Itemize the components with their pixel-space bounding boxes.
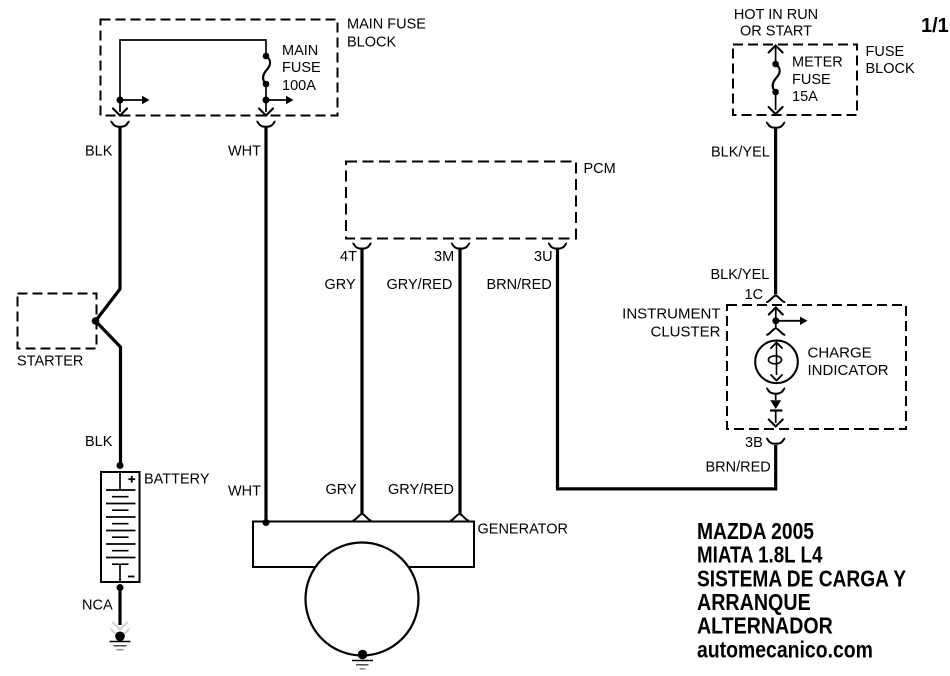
svg-text:INSTRUMENT: INSTRUMENT: [622, 306, 720, 323]
svg-text:3M: 3M: [434, 249, 454, 265]
svg-text:BLK: BLK: [85, 434, 113, 450]
svg-text:STARTER: STARTER: [17, 354, 83, 370]
svg-text:BLK: BLK: [85, 144, 113, 160]
svg-text:CHARGE: CHARGE: [808, 345, 872, 362]
svg-text:NCA: NCA: [82, 598, 113, 614]
svg-text:3B: 3B: [745, 435, 763, 451]
svg-text:GRY/RED: GRY/RED: [387, 277, 453, 293]
svg-text:WHT: WHT: [228, 484, 261, 500]
svg-text:HOT IN RUN: HOT IN RUN: [734, 7, 818, 23]
svg-text:GENERATOR: GENERATOR: [478, 522, 569, 538]
svg-text:PCM: PCM: [584, 161, 616, 177]
svg-text:MIATA 1.8L L4: MIATA 1.8L L4: [697, 542, 823, 568]
svg-text:GRY: GRY: [326, 482, 357, 498]
svg-text:GRY/RED: GRY/RED: [388, 482, 454, 498]
svg-text:MAIN FUSE: MAIN FUSE: [347, 17, 426, 33]
svg-text:FUSE: FUSE: [866, 44, 905, 60]
svg-text:1C: 1C: [745, 287, 764, 303]
svg-text:OR START: OR START: [740, 24, 812, 40]
svg-text:BLOCK: BLOCK: [866, 61, 915, 77]
svg-text:1/1: 1/1: [921, 15, 949, 37]
svg-text:BRN/RED: BRN/RED: [487, 277, 552, 293]
svg-text:METER: METER: [792, 55, 843, 71]
svg-text:WHT: WHT: [228, 144, 261, 160]
svg-text:100A: 100A: [282, 78, 316, 94]
svg-text:FUSE: FUSE: [792, 72, 831, 88]
svg-text:SISTEMA DE CARGA Y: SISTEMA DE CARGA Y: [697, 565, 906, 591]
svg-text:BLK/YEL: BLK/YEL: [711, 145, 770, 161]
svg-text:ARRANQUE: ARRANQUE: [697, 589, 811, 615]
svg-text:automecanico.com: automecanico.com: [697, 636, 873, 662]
svg-text:FUSE: FUSE: [282, 60, 321, 76]
svg-text:BLK/YEL: BLK/YEL: [711, 267, 770, 283]
svg-text:INDICATOR: INDICATOR: [808, 362, 889, 379]
svg-text:3U: 3U: [534, 249, 553, 265]
svg-text:BRN/RED: BRN/RED: [706, 460, 771, 476]
svg-text:BATTERY: BATTERY: [144, 472, 210, 488]
svg-text:MAIN: MAIN: [282, 43, 318, 59]
svg-text:ALTERNADOR: ALTERNADOR: [697, 613, 833, 639]
svg-text:15A: 15A: [792, 89, 818, 105]
svg-text:CLUSTER: CLUSTER: [650, 323, 720, 340]
svg-text:4T: 4T: [340, 249, 357, 265]
svg-text:BLOCK: BLOCK: [347, 35, 396, 51]
svg-text:GRY: GRY: [325, 277, 356, 293]
svg-text:MAZDA 2005: MAZDA 2005: [697, 518, 814, 544]
